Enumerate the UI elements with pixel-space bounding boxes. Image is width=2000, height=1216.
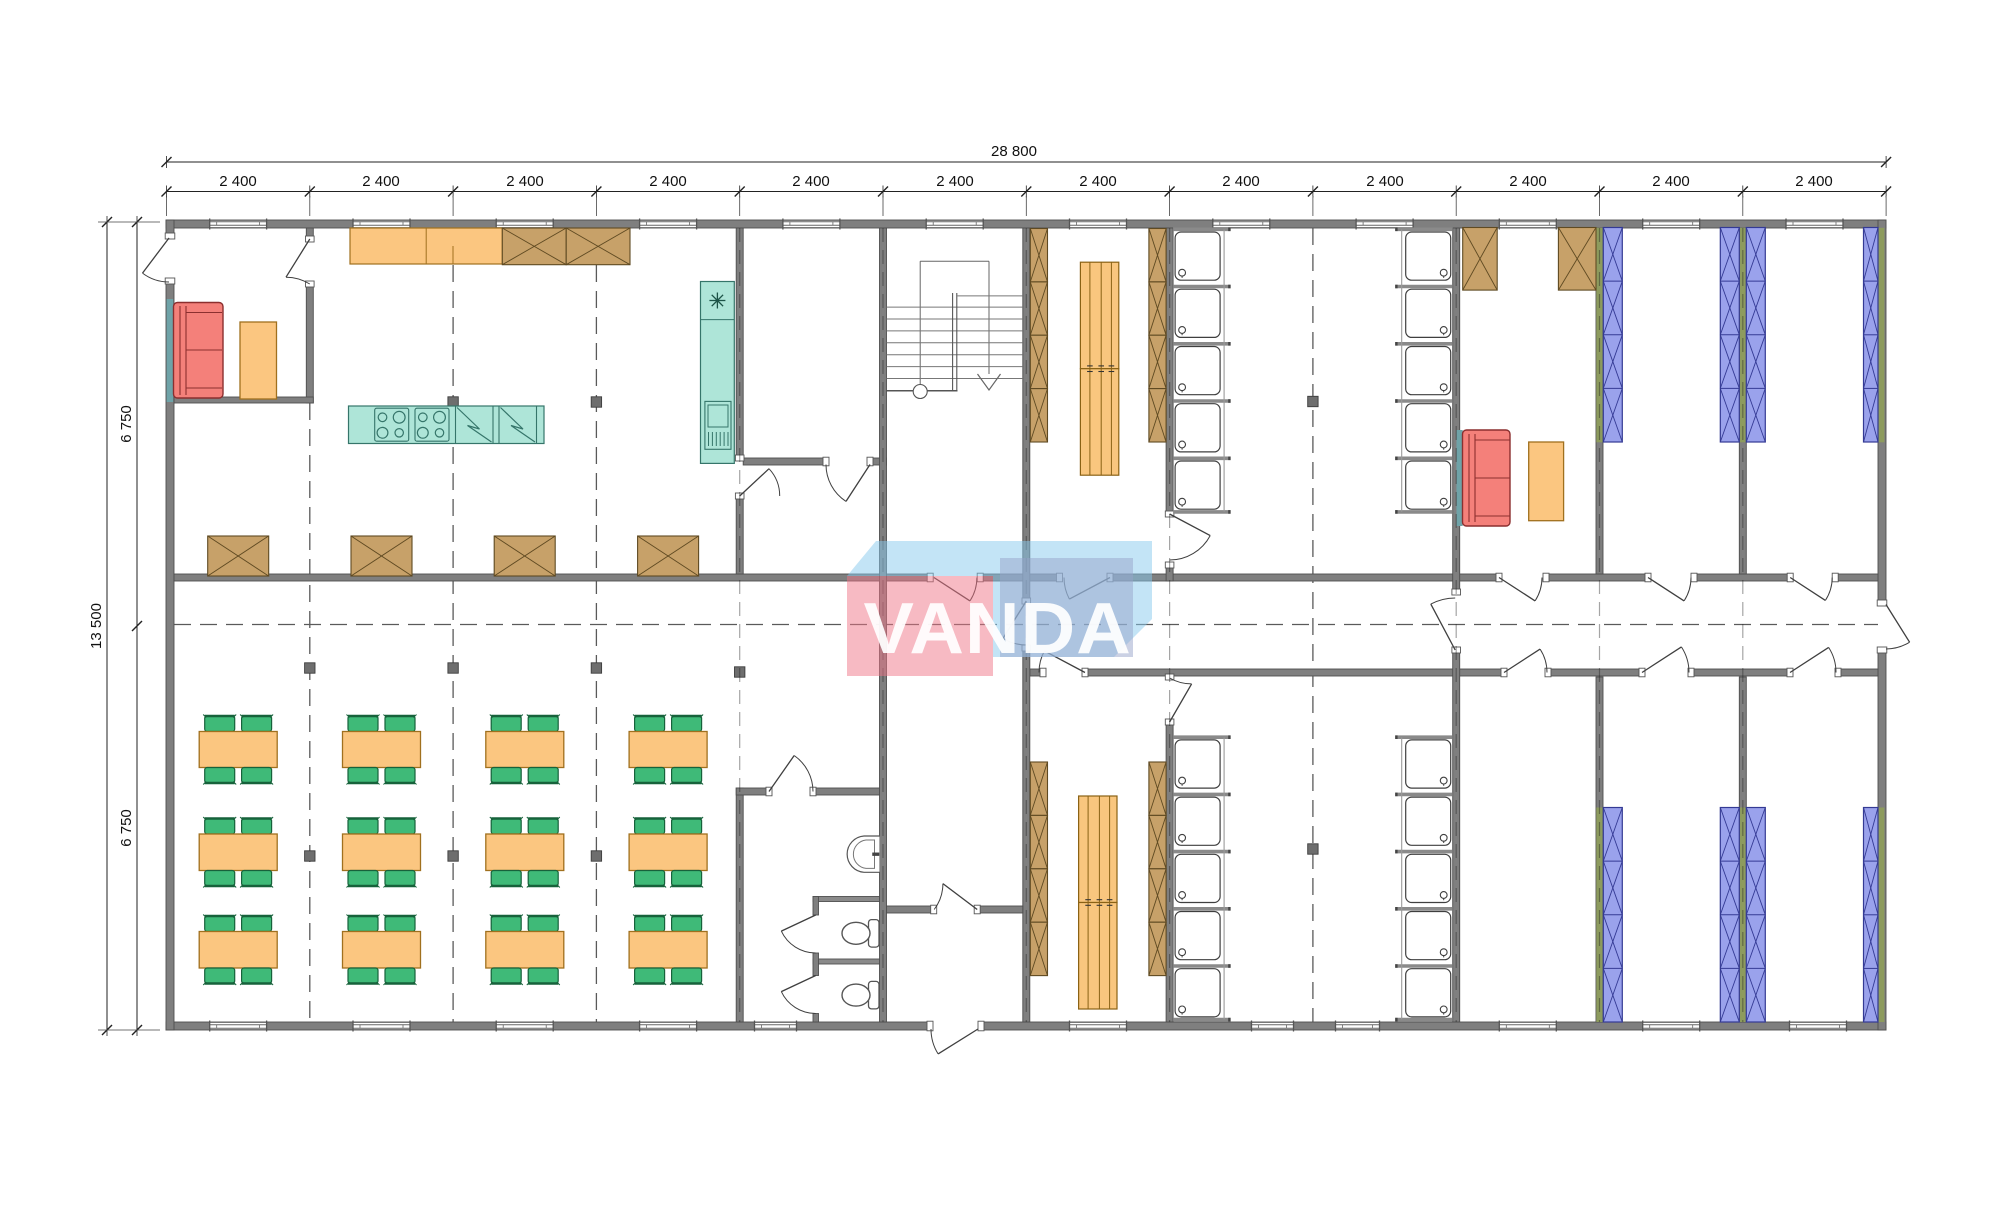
svg-text:2 400: 2 400 (219, 173, 257, 190)
svg-text:2 400: 2 400 (1366, 173, 1404, 190)
svg-text:2 400: 2 400 (1509, 173, 1547, 190)
svg-text:2 400: 2 400 (792, 173, 830, 190)
svg-text:6 750: 6 750 (118, 809, 135, 847)
svg-text:2 400: 2 400 (1795, 173, 1833, 190)
svg-text:2 400: 2 400 (1079, 173, 1117, 190)
svg-text:2 400: 2 400 (936, 173, 974, 190)
svg-text:VANDA: VANDA (863, 588, 1131, 669)
svg-text:28 800: 28 800 (991, 143, 1037, 160)
svg-text:2 400: 2 400 (506, 173, 544, 190)
svg-text:2 400: 2 400 (1652, 173, 1690, 190)
svg-text:2 400: 2 400 (362, 173, 400, 190)
svg-text:2 400: 2 400 (1222, 173, 1260, 190)
svg-text:6 750: 6 750 (118, 405, 135, 443)
svg-text:2 400: 2 400 (649, 173, 687, 190)
svg-text:13 500: 13 500 (88, 603, 105, 649)
